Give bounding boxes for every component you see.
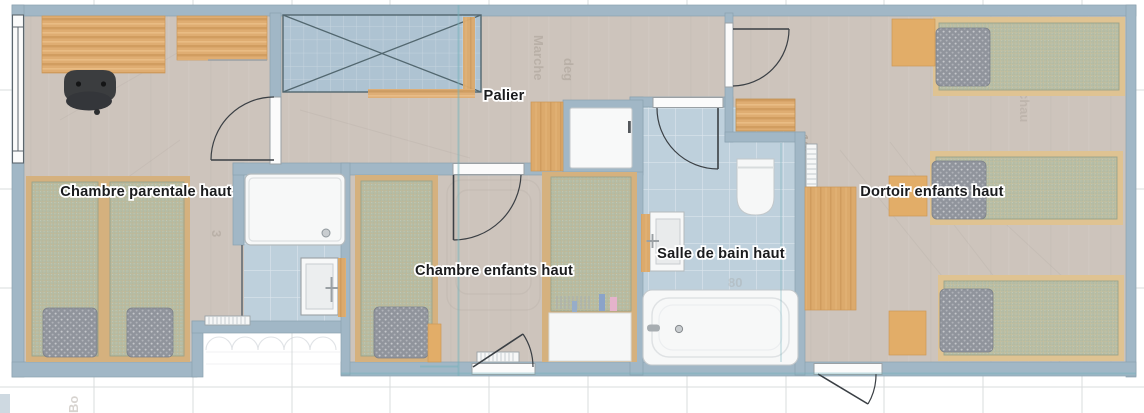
- svg-text:Dortoir enfants haut: Dortoir enfants haut: [860, 184, 1003, 200]
- svg-text:Bo: Bo: [66, 396, 81, 413]
- svg-text:deg: deg: [561, 58, 576, 81]
- svg-text:3: 3: [209, 230, 224, 237]
- svg-text:Chambre enfants haut: Chambre enfants haut: [415, 263, 573, 279]
- svg-text:Palier: Palier: [484, 88, 525, 104]
- svg-text:Marche: Marche: [531, 35, 546, 81]
- svg-text:Salle de bain haut: Salle de bain haut: [657, 246, 785, 262]
- svg-text:80: 80: [728, 275, 742, 290]
- svg-text:Chambre parentale haut: Chambre parentale haut: [60, 184, 231, 200]
- svg-text:chau: chau: [1017, 92, 1032, 122]
